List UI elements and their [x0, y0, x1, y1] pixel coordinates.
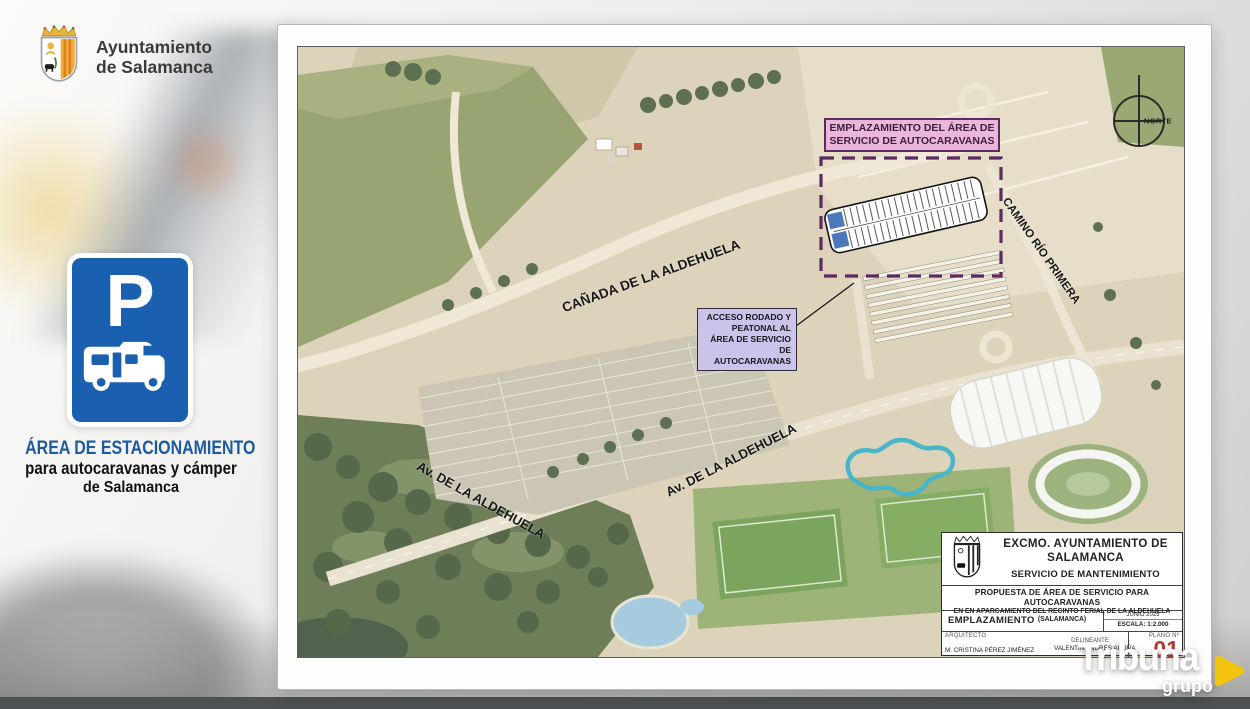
page: Ayuntamiento de Salamanca P ÁREA DE ESTA — [0, 0, 1250, 709]
site-label-line1: EMPLAZAMIENTO DEL ÁREA DE — [826, 122, 998, 135]
project-line1: PROPUESTA DE ÁREA DE SERVICIO PARA AUTOC… — [942, 588, 1182, 608]
department: SERVICIO DE MANTENIMIENTO — [989, 569, 1182, 580]
caption-subtitle2: de Salamanca — [18, 479, 245, 497]
camper-parking-sign: P — [67, 253, 193, 427]
access-label-line4: AUTOCARAVANAS — [703, 356, 791, 367]
access-label-line1: ACCESO RODADO Y — [703, 312, 791, 323]
bottom-dark-bar — [0, 697, 1250, 709]
architect-label: ARQUITECTO — [945, 633, 1049, 639]
tribuna-sub: grupo — [1162, 676, 1213, 697]
aerial-map: CAÑADA DE LA ALDEHUELA Av. DE LA ALDEHUE… — [297, 46, 1185, 658]
site-label-line2: SERVICIO DE AUTOCARAVANAS — [826, 135, 998, 148]
access-label: ACCESO RODADO Y PEATONAL AL ÁREA DE SERV… — [697, 308, 797, 371]
salamanca-crest-icon — [34, 22, 84, 93]
background-arm-blur — [150, 118, 260, 208]
caption-subtitle: para autocaravanas y cámper — [23, 459, 240, 479]
logo-text-line1: Ayuntamiento — [96, 38, 213, 58]
access-label-line2: PEATONAL AL — [703, 323, 791, 334]
caption-title: ÁREA DE ESTACIONAMIENTO — [25, 438, 237, 459]
north-label: NORTE — [1144, 117, 1172, 126]
crest-bw-icon — [949, 534, 985, 585]
tribuna-name: Tribuna — [1077, 636, 1198, 680]
org-line1: EXCMO. AYUNTAMIENTO DE — [989, 538, 1182, 551]
salamanca-logo: Ayuntamiento de Salamanca — [34, 22, 213, 93]
plan-panel: CAÑADA DE LA ALDEHUELA Av. DE LA ALDEHUE… — [277, 24, 1212, 690]
project-line2: EN EN APARCAMIENTO DEL RECINTO FERIAL DE… — [946, 608, 1179, 625]
parking-letter: P — [105, 266, 154, 336]
access-label-line3: ÁREA DE SERVICIO DE — [703, 334, 791, 356]
parking-sign-blue-face: P — [72, 258, 188, 422]
tribuna-play-icon — [1212, 654, 1246, 693]
architect-name: M. CRISTINA PÉREZ JIMÉNEZ — [945, 647, 1049, 654]
caption-block: ÁREA DE ESTACIONAMIENTO para autocaravan… — [5, 438, 257, 497]
tribuna-watermark: Tribuna grupo — [1068, 636, 1250, 704]
org-line2: SALAMANCA — [989, 552, 1182, 565]
site-location-label: EMPLAZAMIENTO DEL ÁREA DE SERVICIO DE AU… — [824, 118, 1000, 152]
camper-icon — [80, 338, 180, 397]
logo-text-line2: de Salamanca — [96, 58, 213, 78]
